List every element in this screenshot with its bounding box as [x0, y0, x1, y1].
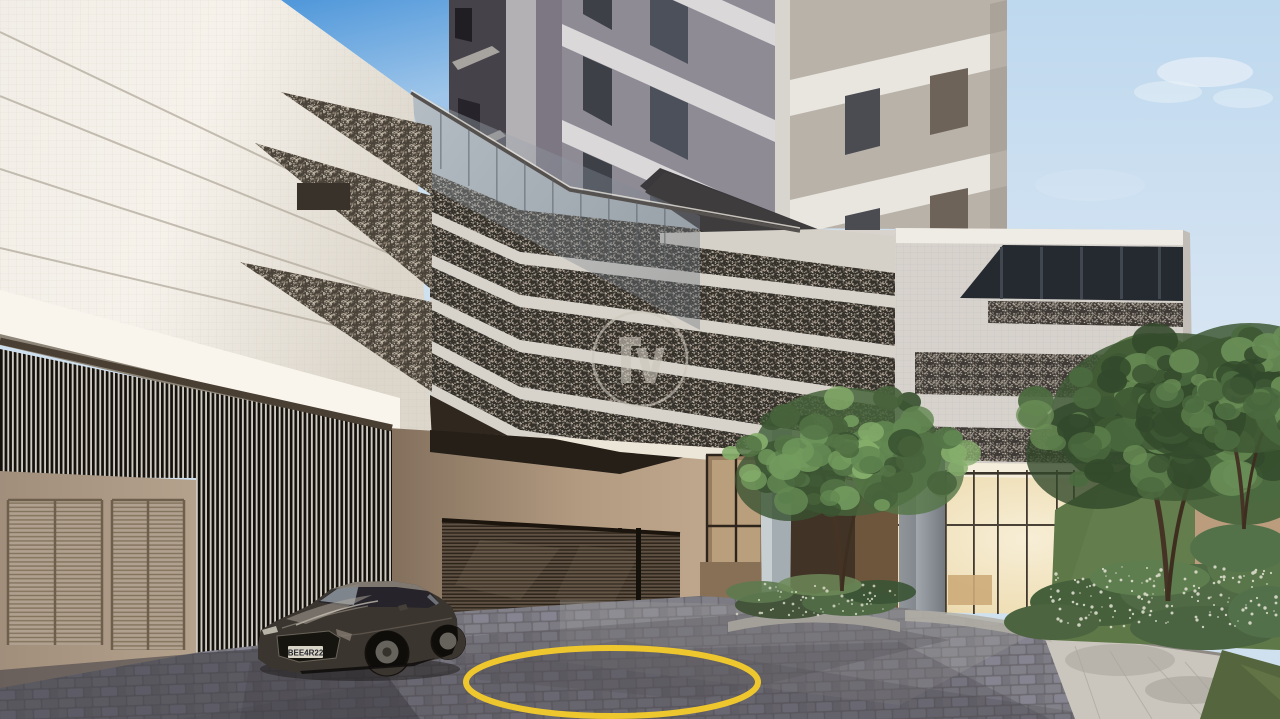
svg-text:BEE4R22: BEE4R22 — [288, 649, 324, 658]
